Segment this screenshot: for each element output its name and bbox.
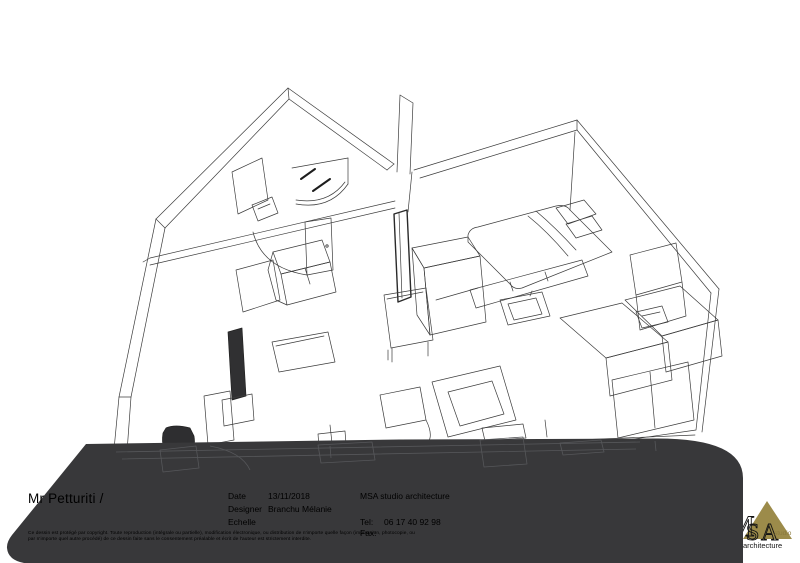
title-block-panel [0, 0, 800, 563]
company-name: MSA studio architecture [360, 491, 450, 502]
designer-label: Designer [228, 504, 262, 515]
copyright-line2: par n'importe quel autre procédé) de ce … [28, 537, 311, 543]
scale-label: Echelle [228, 517, 256, 528]
designer-value: Branchu Mélanie [268, 504, 332, 515]
client-name: Mr Petturiti / [28, 490, 104, 508]
tel-value: 06 17 40 92 98 [384, 517, 441, 528]
date-label: Date [228, 491, 246, 502]
tel-label: Tel: [360, 517, 373, 528]
date-value: 13/11/2018 [268, 491, 310, 502]
